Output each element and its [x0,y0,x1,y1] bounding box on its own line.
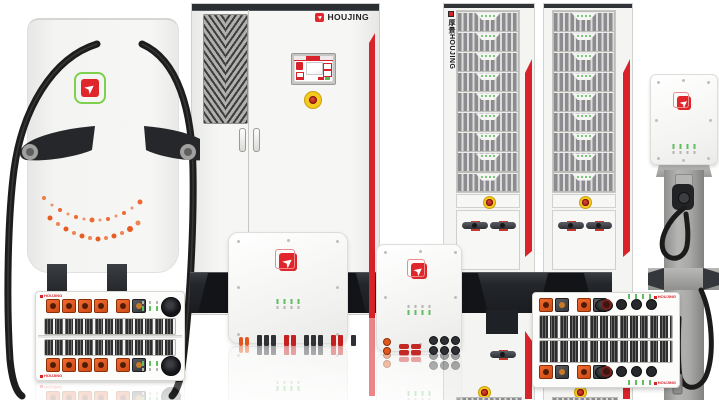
wall-mount-unit-small [376,244,462,352]
vertical-brand-text: 厚景HOUJING [446,19,456,69]
output-connectors [46,299,146,313]
rotary-switch [462,220,488,232]
cooling-fan [161,297,181,317]
round-connectors [601,299,657,310]
rectifier-module [458,132,518,151]
brand-logo-small: HOUJING [40,294,62,298]
brand-logo-icon [677,96,691,110]
screw-dots [384,251,387,254]
product-showcase: HOUJING 厚景HOUJING [0,0,719,400]
brand-logo-text: HOUJING [327,12,369,22]
rectifier-module [554,132,614,151]
charging-module-stack-left: HOUJING HOUJING [35,291,185,381]
hmi-display-screen [291,53,336,85]
brand-logo-small: HOUJING [40,374,62,378]
logo-square-icon [315,13,324,22]
charger-cable-lower [678,290,711,387]
cooling-fan [161,356,181,376]
ventilation-grille [44,339,176,356]
status-led-indicators [277,299,300,309]
ventilation-grille [539,315,673,339]
brand-logo-icon [279,253,297,271]
emergency-stop-button [304,91,322,109]
hmi-logo-icon [296,62,303,70]
ventilation-grille [44,318,176,335]
rectifier-module [554,32,614,51]
cabinet-top-bar [192,4,379,11]
rectifier-module [458,12,518,31]
status-led-indicators [628,380,651,385]
round-connectors [601,366,657,377]
wall-charger-box [650,74,718,165]
rectifier-module [554,92,614,111]
rotary-switch [490,220,516,232]
charging-module-stack-right: HOUJING HOUJING [532,292,680,388]
screw-dots [657,81,660,84]
hmi-chart-area [306,62,323,75]
rectifier-module [554,152,614,171]
red-accent-stripe [525,331,532,399]
rectifier-module [458,112,518,131]
brand-logo-small: HOUJING [654,381,676,385]
breaker-panel [552,210,616,270]
output-connectors [46,358,146,372]
rectifier-module-column [456,10,520,193]
red-accent-stripe [369,33,375,318]
door-handle-left [239,128,246,152]
breaker-panel [456,210,520,270]
brand-logo-small: HOUJING [654,295,676,299]
rotary-switch [558,220,584,232]
rectifier-module [458,32,518,51]
red-accent-stripe [525,59,532,257]
status-led-indicators [628,294,651,299]
brand-logo: HOUJING [315,12,369,22]
terminal-connectors [383,336,460,355]
door-handle-right [253,128,260,152]
rectifier-module [458,152,518,171]
ventilation-grille [203,14,248,124]
rectifier-module [458,173,518,192]
terminal-connectors [239,335,356,346]
rectifier-module [458,92,518,111]
red-accent-stripe-reflection [369,318,375,396]
rectifier-module [458,52,518,71]
emergency-stop-button [579,196,592,209]
vertical-brand-label: 厚景HOUJING [446,11,456,69]
ventilation-grille [539,340,673,363]
charger-cable-upper [662,208,688,258]
rectifier-module-column [552,10,616,193]
rectifier-module [458,72,518,91]
rotary-switch [586,220,612,232]
estop-panel [456,194,520,208]
rectifier-module [554,72,614,91]
red-accent-stripe [623,59,630,257]
status-led-indicators [673,144,696,154]
screw-dots [237,240,240,243]
rectifier-module [554,112,614,131]
rectifier-module [554,12,614,31]
emergency-stop-button [483,196,496,209]
status-led-indicators [408,305,431,315]
rotary-switch [490,349,516,361]
estop-panel [552,194,616,208]
rectifier-module [554,52,614,71]
wall-mount-unit-large [228,232,348,344]
rectifier-module [554,173,614,192]
logo-square-icon [448,11,454,17]
cable-junction-box [486,310,518,334]
brand-logo-icon [411,263,427,279]
